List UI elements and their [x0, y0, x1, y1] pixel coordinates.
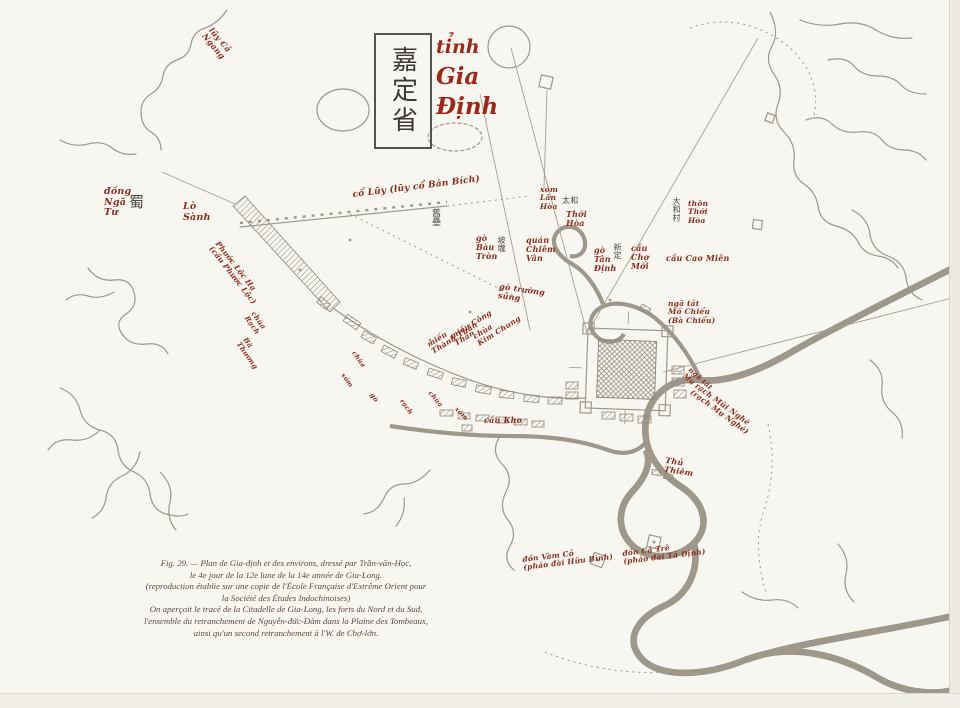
map-label: Lò Sành [183, 202, 211, 223]
map-label: xóm Lân Hòa [540, 186, 558, 211]
map-label: cầu Kho [484, 416, 522, 425]
map-label: 舊壘 [430, 208, 439, 226]
map-label: rạch Mũi Nghé (rạch Mụ Nghé) [688, 382, 755, 437]
map-label: chùa [350, 350, 367, 369]
map-label: đồn Cá Trê (pháo đài Tả Định) [622, 540, 706, 567]
map-label: gò trường súng [498, 282, 546, 306]
map-label: Phước Lộc Hạ (cầu Phước Lộc) [207, 240, 264, 306]
figure-caption: Fig. 29. — Plan de Gia-định et des envir… [128, 558, 444, 639]
title-line: tỉnh [436, 36, 498, 58]
caption-line: l'ensemble du retranchement de Nguyễn-đứ… [128, 616, 444, 628]
map-label: Thủ Thiêm [664, 456, 696, 478]
title-chinese: 嘉定省 [385, 46, 422, 136]
scanned-map-page: 嘉定省 tỉnh Gia Định lũy Cả Ngangđồng Ngã T… [0, 0, 960, 708]
map-label: cầu Chợ Mới [631, 244, 649, 271]
title-line: Gia [436, 63, 498, 90]
caption-line: (reproduction établie sur une copie de l… [128, 581, 444, 593]
map-label: ngã tắt Mồ Chiểu (Bà Chiểu) [668, 300, 715, 325]
title-cartouche: 嘉定省 [374, 33, 432, 149]
map-label: xóm [339, 372, 354, 389]
map-label: cầu Cao Miên [666, 254, 730, 263]
map-label: 太和 [562, 197, 578, 206]
map-label: quán Chiêm Vân [526, 236, 556, 263]
map-title: tỉnh Gia Định [436, 36, 498, 120]
map-label: đồng Ngã Tư [104, 187, 131, 219]
map-label: thôn Thới Hòa [688, 200, 708, 225]
map-label: rạch [398, 398, 414, 416]
caption-line: la Société des Études Indochinoises) [128, 593, 444, 605]
map-label: lũy Cả Ngang [200, 26, 233, 61]
map-label: Thới Hòa [566, 210, 587, 228]
caption-line: le 4e jour de la 12e lune de la 14e anné… [128, 570, 444, 582]
map-label: 坡壠 [497, 236, 505, 252]
title-line: Định [436, 93, 498, 120]
caption-line: ainsi qu'un second retranchement à l'W. … [128, 628, 444, 640]
map-label: chùa Rạch [243, 310, 268, 336]
map-label: chùa [426, 390, 443, 409]
caption-line: Fig. 29. — Plan de Gia-định et des envir… [128, 558, 444, 570]
map-label: cổ Lũy (lũy cổ Bán Bích) [352, 174, 481, 200]
map-label: Bà Thương [235, 336, 266, 371]
map-label: gò [368, 392, 379, 404]
map-label: 大和村 [672, 197, 680, 222]
map-label: đồn Vàm Cỏ (pháo đài Hữu Bình) [522, 545, 614, 573]
map-label: gò Tân Định [594, 246, 616, 273]
map-label: xóm [453, 406, 469, 422]
map-label: gò Bàu Tròn [476, 234, 498, 261]
map-label: 蜀 [129, 194, 144, 211]
caption-line: On aperçoit le tracé de la Citadelle de … [128, 604, 444, 616]
